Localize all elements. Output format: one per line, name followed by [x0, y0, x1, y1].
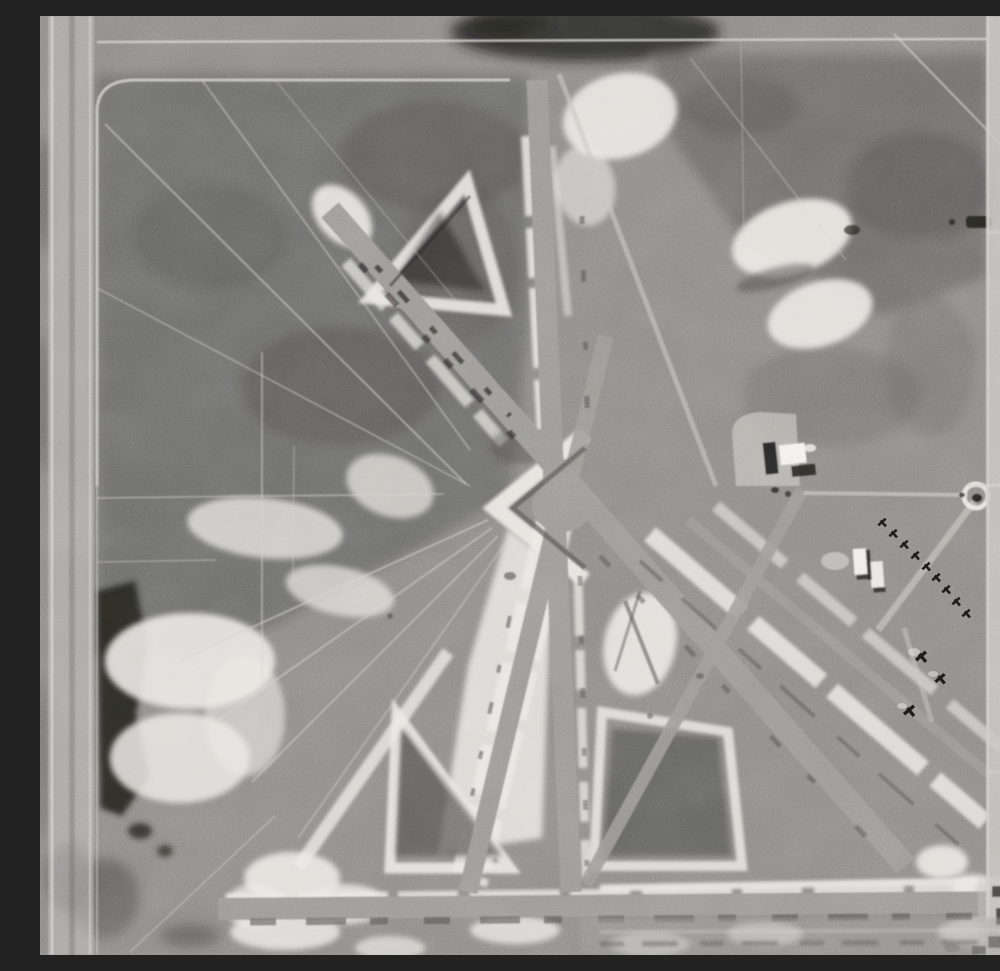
- aerial-photograph: Black-and-white vertical aerial photogra…: [40, 16, 1000, 955]
- aerial-photo-canvas: Black-and-white vertical aerial photogra…: [40, 16, 1000, 955]
- film-grain-overlay: [40, 16, 1000, 955]
